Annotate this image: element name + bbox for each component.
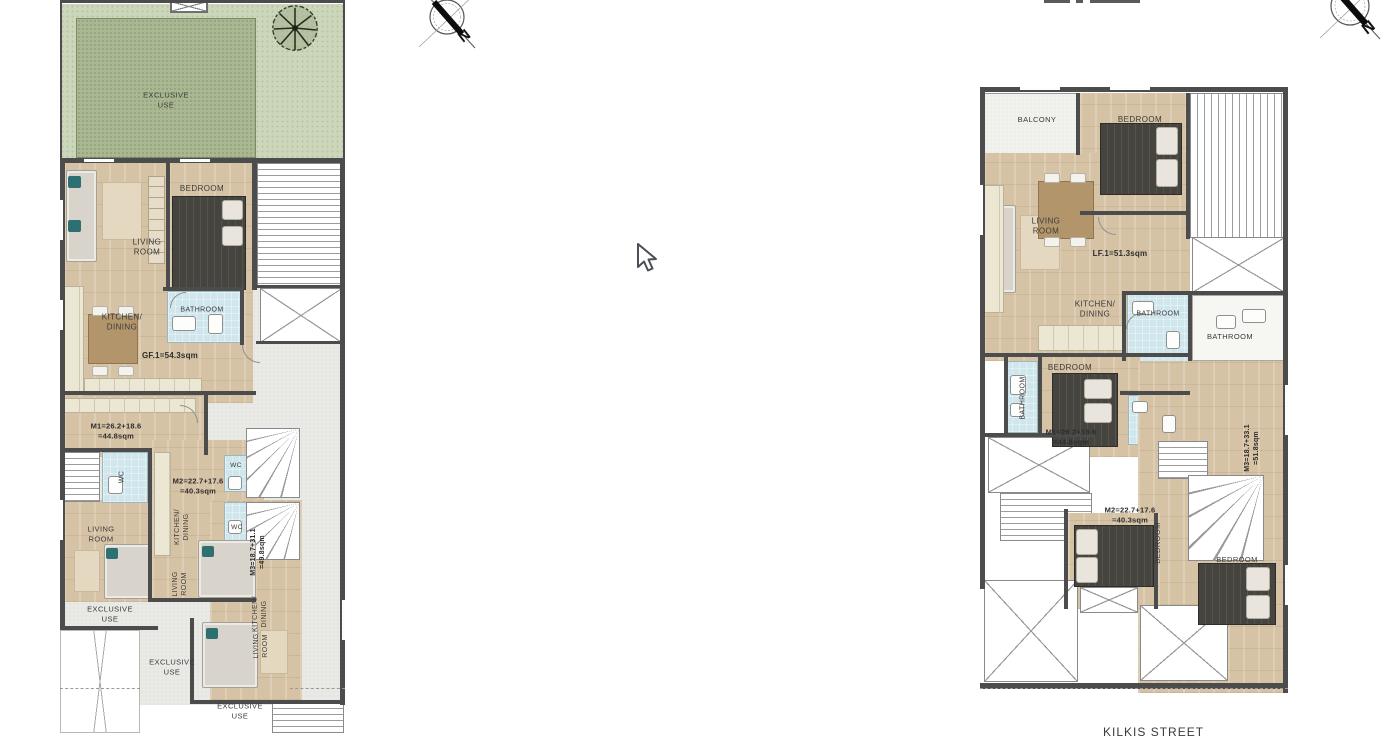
- site-line: [980, 688, 1288, 689]
- first-floor-plan: BALCONYBEDROOMLIVING ROOMLF.1=51.3sqmKIT…: [980, 85, 1295, 735]
- rug: [260, 630, 288, 674]
- clipped-text-fragment: [1076, 0, 1083, 3]
- window: [60, 500, 63, 540]
- cushion: [106, 548, 118, 559]
- window: [1020, 87, 1060, 90]
- kitchen-counter: [984, 185, 1004, 313]
- pillow: [222, 200, 243, 220]
- interior-wall: [1188, 295, 1192, 361]
- exterior-wall: [980, 87, 985, 589]
- chair: [118, 306, 134, 316]
- dining-table: [88, 314, 138, 364]
- window: [1285, 565, 1288, 605]
- site-boundary-wall: [60, 0, 345, 3]
- interior-wall: [190, 618, 194, 704]
- cushion: [202, 546, 214, 557]
- m3-bathroom-floor: [1192, 295, 1285, 361]
- dining-table: [1038, 181, 1094, 239]
- kitchen-counter: [154, 452, 171, 556]
- toilet: [1010, 375, 1026, 395]
- pillow: [1084, 379, 1112, 399]
- window: [342, 600, 345, 640]
- chair: [92, 306, 108, 316]
- chair: [1070, 173, 1086, 183]
- toilet: [108, 476, 123, 494]
- window: [60, 200, 63, 240]
- interior-wall: [1154, 513, 1158, 609]
- chair: [1044, 173, 1060, 183]
- north-compass-icon: N: [1312, 0, 1388, 44]
- kitchen-counter: [64, 398, 196, 413]
- sink: [1216, 315, 1236, 329]
- sink: [172, 316, 196, 331]
- interior-wall: [980, 433, 1095, 437]
- pillow: [1084, 403, 1112, 423]
- toilet: [208, 314, 223, 334]
- interior-wall: [204, 393, 208, 455]
- pillow: [1156, 127, 1178, 155]
- toilet: [228, 520, 242, 534]
- street-name-label: KILKIS STREET: [1103, 725, 1198, 739]
- m2-spiral-stair: [246, 428, 300, 498]
- cushion: [68, 176, 81, 188]
- pillow: [1246, 567, 1270, 591]
- driveway-ramp: [60, 630, 140, 733]
- interior-wall: [60, 391, 256, 395]
- interior-wall: [163, 287, 244, 291]
- bathtub: [1242, 309, 1266, 323]
- interior-wall: [1038, 357, 1042, 435]
- interior-wall: [256, 341, 345, 344]
- stair-treads: [1158, 441, 1208, 479]
- rug: [74, 550, 100, 592]
- interior-wall: [148, 448, 152, 602]
- window: [84, 159, 114, 162]
- chair: [118, 366, 134, 376]
- floor-plan-canvas: { "palette":{"wood":"#d6c3a5","wall":"#4…: [0, 0, 1395, 735]
- exterior-steps: [272, 702, 344, 733]
- ground-floor-plan: EXCLUSIVE USEBEDROOMLIVING ROOMKITCHEN/ …: [60, 0, 345, 735]
- m1-bathroom-floor: [1004, 361, 1038, 433]
- garden-tree: [266, 2, 324, 56]
- rug: [102, 182, 142, 240]
- window: [60, 300, 63, 330]
- m1-internal-stair: [62, 452, 100, 502]
- sink: [1132, 401, 1148, 413]
- sink: [1010, 403, 1024, 417]
- site-wall: [60, 3, 62, 160]
- cushion: [68, 220, 81, 232]
- pillow: [1156, 159, 1178, 187]
- pillow: [1076, 529, 1098, 555]
- pillow: [1076, 557, 1098, 583]
- chair: [92, 366, 108, 376]
- window: [180, 159, 210, 162]
- pillow: [1246, 595, 1270, 619]
- interior-wall: [166, 163, 170, 291]
- site-line: [290, 688, 345, 689]
- interior-wall: [980, 353, 1192, 357]
- void-x-area: [1080, 587, 1138, 613]
- m3-spiral-stair: [1188, 475, 1264, 561]
- interior-wall: [1004, 357, 1008, 435]
- interior-wall: [1064, 509, 1068, 609]
- site-line: [60, 688, 140, 689]
- north-compass-icon: N: [412, 0, 482, 52]
- toilet: [1162, 415, 1176, 433]
- pillow: [222, 226, 243, 246]
- chair: [1070, 237, 1086, 247]
- mouse-cursor: [636, 243, 662, 275]
- balcony-floor: [984, 93, 1078, 155]
- exterior-wall: [152, 598, 256, 602]
- wardrobe: [148, 176, 165, 264]
- kitchen-counter: [64, 286, 84, 394]
- interior-wall: [240, 287, 244, 345]
- interior-wall: [256, 285, 345, 288]
- exterior-wall: [60, 626, 158, 630]
- window: [1110, 87, 1150, 90]
- sink: [1132, 301, 1154, 315]
- interior-wall: [252, 158, 257, 290]
- site-wall: [343, 3, 345, 160]
- entrance-porch: [260, 288, 342, 343]
- window: [980, 185, 983, 235]
- interior-wall: [1122, 291, 1288, 295]
- interior-wall: [1186, 93, 1190, 239]
- chair: [1044, 237, 1060, 247]
- clipped-text-fragment: [1090, 0, 1140, 3]
- interior-wall: [60, 448, 150, 452]
- toilet: [1166, 331, 1180, 349]
- toilet: [228, 476, 242, 490]
- window: [1285, 385, 1288, 435]
- exterior-wall: [190, 700, 345, 704]
- lift-void: [1192, 237, 1285, 293]
- interior-wall: [1120, 391, 1190, 395]
- common-staircase: [257, 163, 341, 287]
- common-staircase: [1190, 93, 1288, 238]
- interior-wall: [1076, 93, 1080, 155]
- garden-exclusive-use-area: [76, 18, 256, 158]
- kitchen-counter: [1038, 325, 1126, 351]
- interior-wall: [1080, 211, 1190, 215]
- clipped-text-fragment: [1044, 0, 1070, 3]
- cushion: [206, 628, 218, 639]
